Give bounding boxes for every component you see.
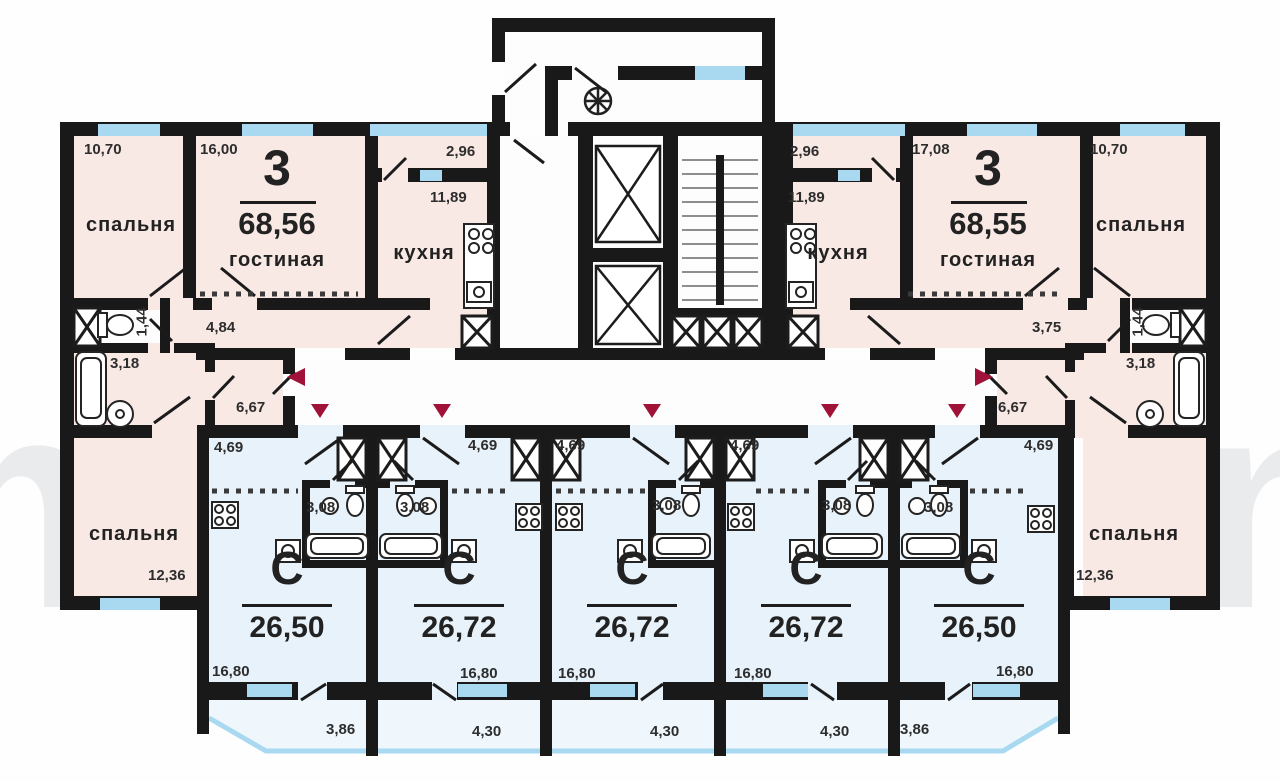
room-name-label: спальня <box>86 215 176 236</box>
toilet-icon <box>1143 313 1180 337</box>
room-area-label: 3,08 <box>652 498 681 514</box>
room-area-label: 17,08 <box>912 142 950 158</box>
room-name-label: спальня <box>1096 215 1186 236</box>
studio-type-label: С <box>615 544 648 592</box>
studio-type-label: С <box>270 544 303 592</box>
toilet-icon <box>346 486 364 516</box>
room-area-label: 3,18 <box>110 356 139 372</box>
room-name-label: кухня <box>393 243 454 264</box>
toilet-icon <box>98 313 133 337</box>
room-name-label: гостиная <box>940 250 1036 271</box>
studio-total-area: 26,50 <box>941 612 1016 644</box>
room-area-label: 10,70 <box>1090 142 1128 158</box>
bathtub-icon <box>76 352 106 426</box>
studio-type-label: С <box>962 544 995 592</box>
room-area-label: 1,44 <box>1131 307 1147 336</box>
room-area-label: 3,75 <box>1032 320 1061 336</box>
room-area-label: 3,08 <box>306 500 335 516</box>
room-area-label: 4,69 <box>468 438 497 454</box>
studio-total-area: 26,72 <box>594 612 669 644</box>
room-area-label: 10,70 <box>84 142 122 158</box>
studio-total-area: 26,50 <box>249 612 324 644</box>
room-area-label: 4,69 <box>1024 438 1053 454</box>
studio-type-label: С <box>789 544 822 592</box>
balcony-area-label: 4,30 <box>820 724 849 740</box>
room-area-label: 11,89 <box>788 190 825 206</box>
bathtub-icon <box>902 534 960 558</box>
stove-icon <box>212 502 238 528</box>
balcony-area-label: 4,30 <box>650 724 679 740</box>
apartment-total-area: 68,56 <box>238 208 316 241</box>
room-name-label: спальня <box>89 524 179 545</box>
room-name-label: гостиная <box>229 250 325 271</box>
stove-icon <box>556 504 582 530</box>
fraction-line <box>587 604 677 607</box>
fraction-line <box>242 604 332 607</box>
fraction-line <box>951 201 1027 204</box>
stove-icon <box>1028 506 1054 532</box>
room-name-label: спальня <box>1089 524 1179 545</box>
bathtub-icon <box>306 534 368 558</box>
room-area-label: 4,84 <box>206 320 235 336</box>
room-fills <box>74 32 1206 753</box>
balcony-area-label: 3,86 <box>900 722 929 738</box>
room-area-label: 4,69 <box>730 438 759 454</box>
bathtub-icon <box>380 534 442 558</box>
room-area-label: 2,96 <box>790 144 819 160</box>
room-area-label: 3,08 <box>822 498 851 514</box>
stove-icon <box>516 504 542 530</box>
room-area-label: 6,67 <box>236 400 265 416</box>
room-area-label: 3,08 <box>400 500 429 516</box>
fraction-line <box>240 201 316 204</box>
sink-icon <box>1137 401 1163 427</box>
studio-total-area: 26,72 <box>421 612 496 644</box>
toilet-icon <box>682 486 700 516</box>
kitchen-counter <box>786 224 816 308</box>
room-area-label: 4,69 <box>556 438 585 454</box>
apartment-type-label: 3 <box>974 142 1002 195</box>
kitchen-counter <box>464 224 494 308</box>
balcony-area-label: 4,30 <box>472 724 501 740</box>
fraction-line <box>934 604 1024 607</box>
floor-plan: m n <box>0 0 1280 781</box>
toilet-icon <box>856 486 874 516</box>
bathtub-icon <box>1174 352 1204 426</box>
room-area-label: 16,80 <box>734 666 772 682</box>
bathtub-icon <box>822 534 882 558</box>
room-area-label: 2,96 <box>446 144 475 160</box>
room-area-label: 11,89 <box>430 190 467 206</box>
stove-icon <box>728 504 754 530</box>
studio-total-area: 26,72 <box>768 612 843 644</box>
room-area-label: 16,80 <box>212 664 250 680</box>
bathtub-icon <box>652 534 710 558</box>
sink-icon <box>107 401 133 427</box>
apartment-type-label: 3 <box>263 142 291 195</box>
room-area-label: 16,80 <box>558 666 596 682</box>
floor-plan-graphics <box>0 0 1280 781</box>
room-name-label: кухня <box>807 243 868 264</box>
studio-type-label: С <box>442 544 475 592</box>
fraction-line <box>414 604 504 607</box>
room-area-label: 12,36 <box>1076 568 1114 584</box>
fraction-line <box>761 604 851 607</box>
room-area-label: 16,00 <box>200 142 238 158</box>
room-area-label: 4,69 <box>214 440 243 456</box>
room-area-label: 1,44 <box>135 307 151 336</box>
room-area-label: 6,67 <box>998 400 1027 416</box>
room-area-label: 3,18 <box>1126 356 1155 372</box>
apartment-total-area: 68,55 <box>949 208 1027 241</box>
room-area-label: 3,08 <box>924 500 953 516</box>
room-area-label: 16,80 <box>460 666 498 682</box>
room-area-label: 16,80 <box>996 664 1034 680</box>
room-area-label: 12,36 <box>148 568 186 584</box>
sink-icon <box>909 498 925 514</box>
balcony-area-label: 3,86 <box>326 722 355 738</box>
vent-symbol-icon <box>585 88 611 114</box>
